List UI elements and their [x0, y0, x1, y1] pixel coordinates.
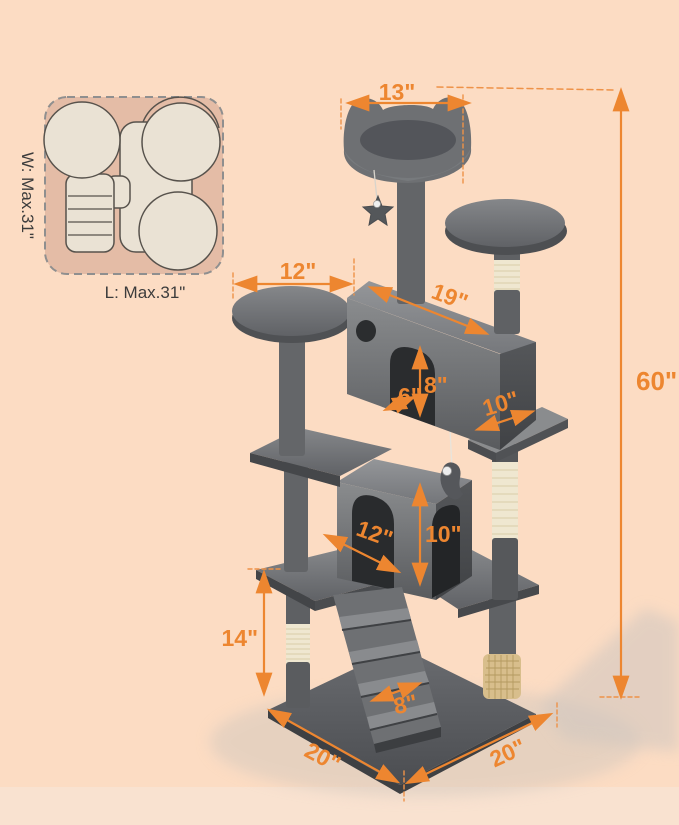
cat-tree-scene: 13" 60" 12" 19" 8" [0, 0, 679, 825]
dim-label-6: 6" [398, 383, 422, 409]
footprint-width-label: W: Max.31" [18, 152, 37, 239]
bottom-left-scratching-post [286, 592, 310, 708]
dim-label-8-door: 8" [424, 372, 448, 398]
floor-strip [0, 787, 679, 825]
top-perch [344, 97, 472, 183]
dim-label-14: 14" [222, 625, 259, 651]
right-platform [445, 199, 567, 255]
top-perch-post [397, 166, 425, 304]
dim-label-13: 13" [379, 79, 416, 105]
lower-condo-side-door [432, 505, 460, 598]
top-view-platform-1 [44, 102, 120, 178]
top-view-platform-2 [142, 103, 220, 181]
top-view-ramp [66, 174, 114, 252]
mid-right-scratching-post [492, 444, 518, 600]
product-dimension-diagram: Ideal Cats Weight: 31lb [0, 0, 679, 825]
dim-label-12-upper: 12" [280, 258, 317, 284]
bell-icon [374, 201, 381, 208]
upper-condo-peek-hole [356, 320, 376, 342]
top-view-platform-3 [139, 192, 217, 270]
dim-label-60: 60" [636, 366, 677, 396]
left-platform [232, 286, 352, 343]
right-platform-post [494, 246, 520, 334]
left-platform-post [279, 330, 305, 456]
footprint-length-label: L: Max.31" [105, 283, 186, 302]
bell-icon [443, 467, 452, 476]
dim-label-10-lower: 10" [425, 521, 462, 547]
